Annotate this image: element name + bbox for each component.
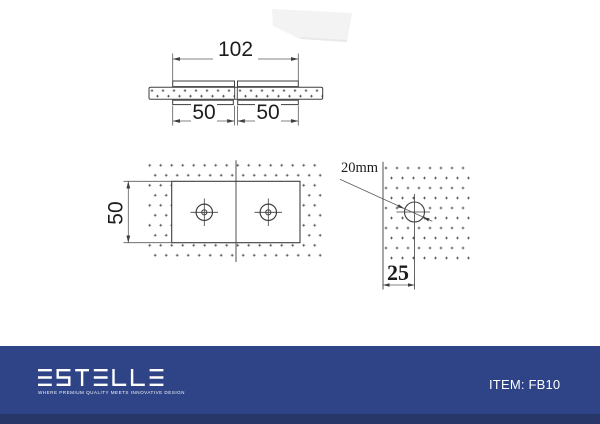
- dim-label-50-front: 50: [106, 192, 128, 235]
- glass-thickness-label: 20mm: [341, 161, 378, 176]
- footer-bar: ESTELLE WHERE PREMIUM QUALITY MEETS INNO…: [0, 346, 600, 424]
- estelle-logo-letters: [38, 369, 164, 387]
- dim-label-25: 25: [384, 262, 412, 284]
- dim-label-50-top-right: 50: [255, 102, 281, 123]
- front-view: [124, 160, 322, 262]
- logo-letter-E: [150, 370, 164, 385]
- spec-sheet: 102 50 50 50 20mm 25 ESTELLE WHERE PREMI…: [0, 0, 600, 424]
- logo-letter-L: [112, 369, 126, 385]
- dim-label-50-top-left: 50: [191, 102, 217, 123]
- logo-letter-E: [38, 370, 52, 385]
- brand-name: ESTELLE: [38, 387, 39, 388]
- logo-letter-E: [94, 370, 108, 385]
- dim-label-102: 102: [213, 39, 258, 60]
- item-number: ITEM: FB10: [489, 377, 560, 392]
- logo-letter-S: [57, 370, 71, 385]
- footer-shade: [0, 414, 600, 424]
- top-view: [149, 54, 323, 126]
- technical-drawing: [0, 0, 600, 347]
- logo-letter-T: [75, 370, 89, 386]
- brand-logo: ESTELLE WHERE PREMIUM QUALITY MEETS INNO…: [38, 369, 165, 395]
- watermark-blob: [272, 9, 352, 42]
- logo-letter-L: [131, 369, 145, 385]
- brand-tagline: WHERE PREMIUM QUALITY MEETS INNOVATIVE D…: [38, 390, 165, 395]
